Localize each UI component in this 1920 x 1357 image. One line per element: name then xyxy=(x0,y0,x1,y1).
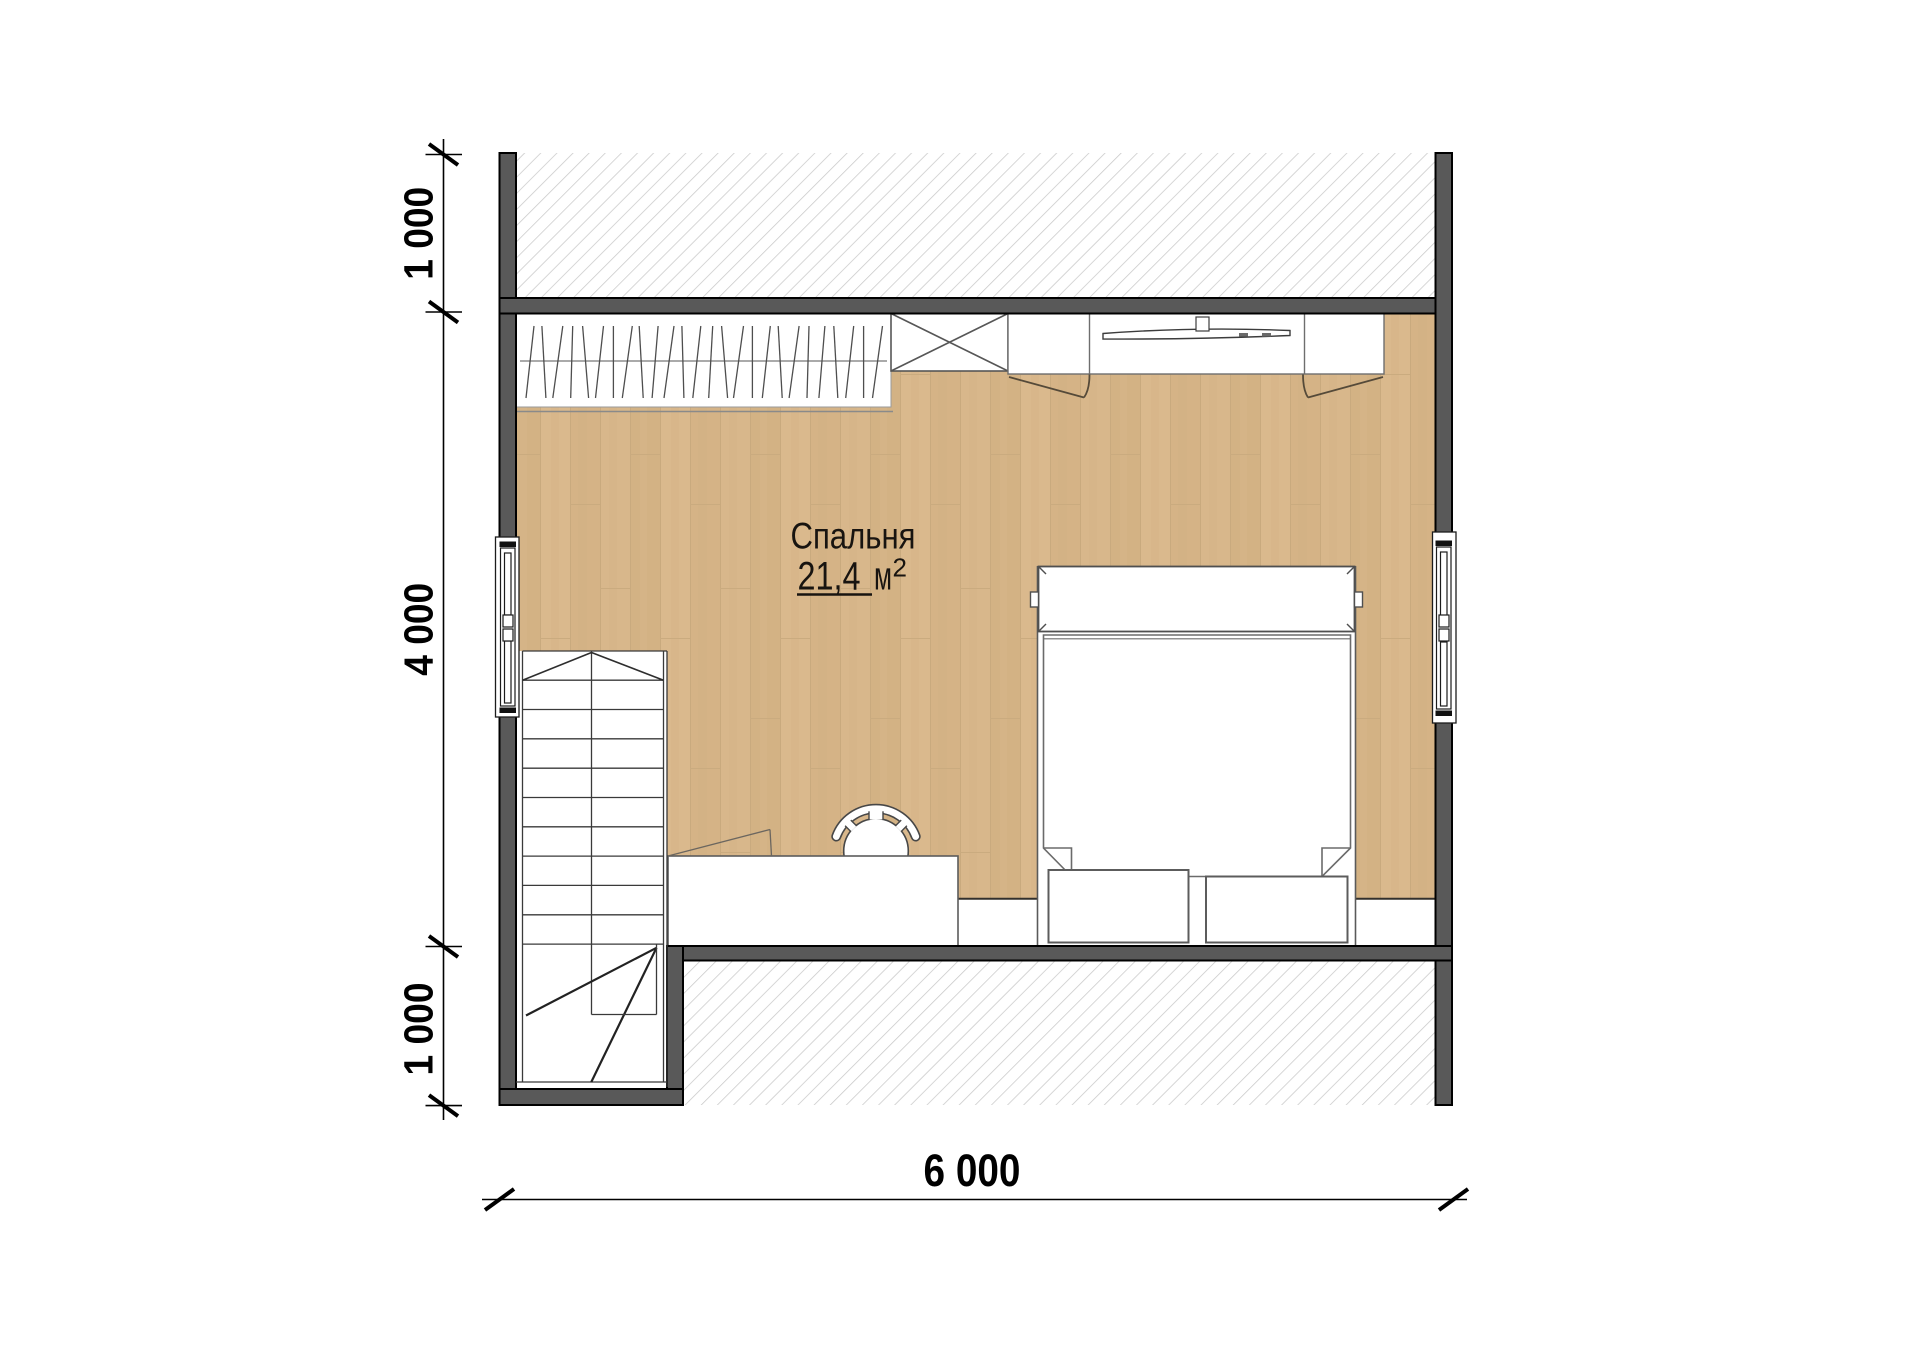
svg-text:4 000: 4 000 xyxy=(396,583,442,676)
svg-text:21,4м2: 21,4м2 xyxy=(798,553,907,599)
svg-text:6 000: 6 000 xyxy=(924,1145,1021,1196)
svg-text:1 000: 1 000 xyxy=(396,983,442,1076)
svg-text:Спальня: Спальня xyxy=(791,515,916,557)
svg-text:1 000: 1 000 xyxy=(396,187,442,280)
